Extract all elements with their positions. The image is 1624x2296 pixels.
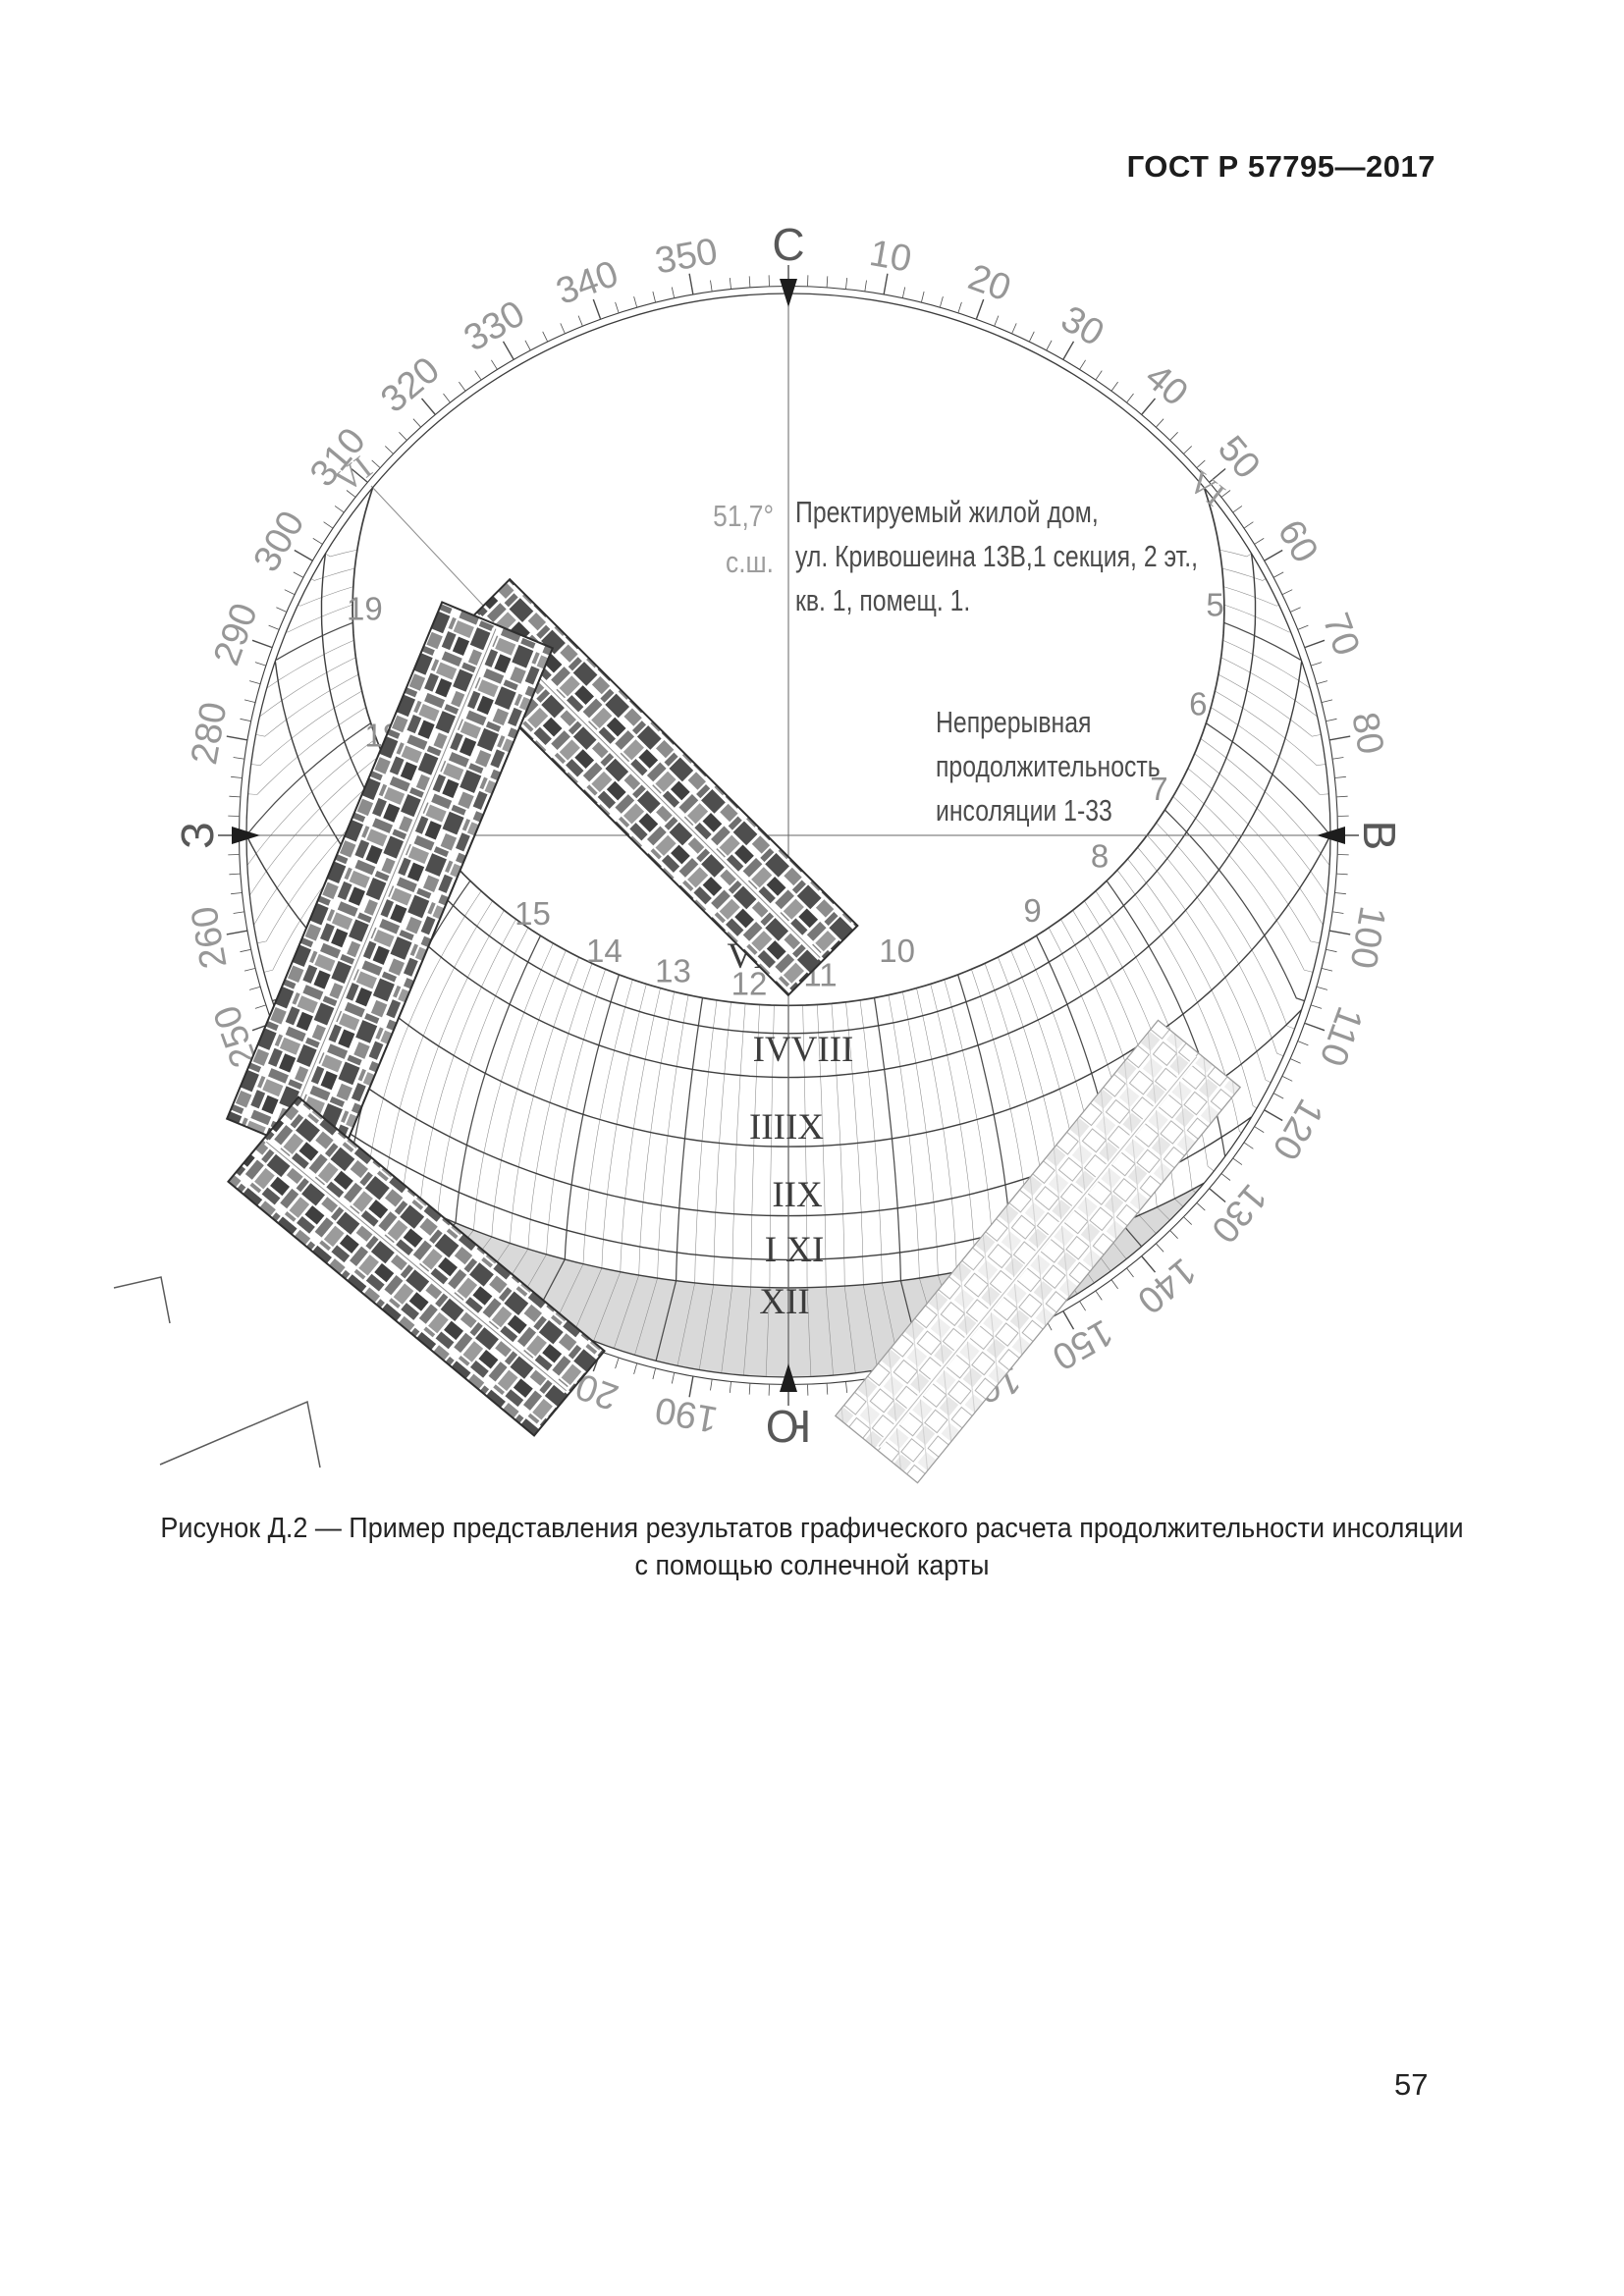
building-plan-wing-west: [227, 602, 553, 1164]
document-page: ГОСТ Р 57795—2017 1020304050607080100110…: [0, 0, 1624, 2296]
hour-label: 9: [1023, 892, 1041, 929]
latitude-value: 51,7°: [692, 493, 774, 539]
degree-label: 150: [1045, 1310, 1119, 1377]
insolation-note: Непрерывная продолжительность инсоляции …: [936, 700, 1161, 832]
degree-label: 300: [245, 505, 312, 579]
month-label: XII: [759, 1282, 809, 1322]
insolation-note-line: Непрерывная: [936, 700, 1161, 744]
degree-label: 20: [963, 256, 1016, 309]
hour-label: 10: [879, 933, 915, 969]
degree-label: 110: [1311, 1001, 1370, 1071]
hour-label: 6: [1189, 686, 1207, 722]
degree-label: 130: [1203, 1176, 1274, 1251]
hour-label: 15: [514, 895, 551, 932]
cardinal-label: З: [172, 822, 223, 849]
degree-label: 190: [652, 1388, 721, 1439]
degree-label: 260: [184, 903, 235, 972]
degree-label: 290: [206, 598, 266, 670]
degree-label: 100: [1341, 903, 1392, 972]
cardinal-label: С: [772, 219, 804, 270]
hour-label: 19: [347, 590, 383, 626]
figure-caption-line: с помощью солнечной карты: [57, 1547, 1567, 1584]
page-number: 57: [1394, 2067, 1428, 2103]
degree-label: 40: [1137, 356, 1195, 414]
cardinal-label: В: [1354, 821, 1405, 851]
degree-label: 60: [1270, 513, 1326, 570]
degree-label: 320: [373, 349, 448, 421]
degree-label: 340: [551, 253, 623, 313]
degree-label: 120: [1264, 1092, 1330, 1166]
latitude-unit: с.ш.: [692, 539, 774, 585]
latitude-annotation: 51,7° с.ш.: [692, 493, 774, 585]
hour-label: 13: [655, 953, 691, 989]
address-line: кв. 1, помещ. 1.: [795, 578, 1198, 622]
insolation-note-line: продолжительность: [936, 744, 1161, 788]
degree-label: 30: [1055, 298, 1111, 355]
boundary-mark-lower: [160, 1402, 320, 1468]
degree-label: 80: [1343, 710, 1391, 758]
month-label: I XI: [765, 1230, 825, 1270]
address-line: ул. Кривошеина 13В,1 секция, 2 эт.,: [795, 534, 1198, 578]
month-label: IIX: [772, 1175, 823, 1215]
degree-label: 70: [1315, 608, 1368, 661]
degree-label: 280: [184, 699, 235, 768]
figure-caption-line: Рисунок Д.2 — Пример представления резул…: [57, 1510, 1567, 1547]
address-line: Пректируемый жилой дом,: [795, 490, 1198, 534]
insolation-note-line: инсоляции 1-33: [936, 788, 1161, 832]
address-annotation: Пректируемый жилой дом, ул. Кривошеина 1…: [795, 490, 1198, 622]
month-label: IIIIX: [749, 1107, 824, 1148]
degree-label: 350: [652, 231, 721, 282]
solar-chart: 1020304050607080100110120130140150160170…: [0, 0, 1624, 1494]
cardinal-label: Ю: [766, 1401, 811, 1452]
boundary-mark-upper: [114, 1277, 170, 1323]
hour-label: 8: [1091, 837, 1109, 874]
degree-label: 140: [1129, 1250, 1204, 1321]
hour-label: 14: [586, 933, 623, 969]
figure-caption: Рисунок Д.2 — Пример представления резул…: [57, 1510, 1567, 1584]
hour-label: 5: [1206, 586, 1223, 622]
degree-label: 330: [458, 293, 532, 359]
month-label: IVVIII: [753, 1030, 854, 1070]
degree-label: 10: [867, 233, 915, 281]
